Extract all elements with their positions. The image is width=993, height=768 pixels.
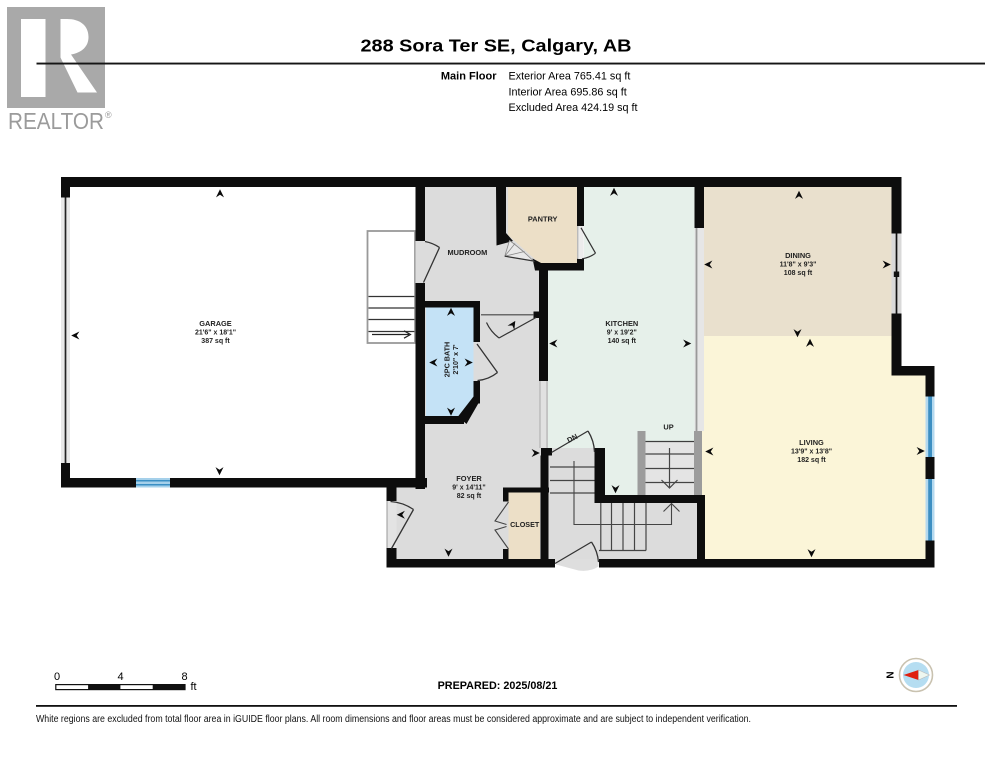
svg-text:8: 8 [181,671,187,683]
svg-text:Excluded Area 424.19 sq ft: Excluded Area 424.19 sq ft [509,102,638,114]
svg-text:4: 4 [117,671,123,683]
svg-text:108 sq ft: 108 sq ft [784,270,813,277]
svg-text:9' x 19'2": 9' x 19'2" [607,329,637,336]
svg-text:2'10" x 7': 2'10" x 7' [453,344,460,374]
svg-text:LIVING: LIVING [799,438,824,447]
svg-text:PREPARED: 2025/08/21: PREPARED: 2025/08/21 [438,680,558,692]
svg-text:PANTRY: PANTRY [528,215,558,224]
svg-text:CLOSET: CLOSET [510,520,540,529]
svg-text:UP: UP [663,423,673,432]
svg-text:140 sq ft: 140 sq ft [608,338,637,345]
svg-text:13'9" x 13'8": 13'9" x 13'8" [791,448,832,455]
svg-text:Main Floor: Main Floor [441,71,497,83]
svg-text:GARAGE: GARAGE [199,319,232,328]
svg-text:N: N [886,671,897,678]
svg-text:FOYER: FOYER [456,474,482,483]
svg-text:387 sq ft: 387 sq ft [201,338,230,345]
svg-text:288 Sora Ter SE, Calgary, AB: 288 Sora Ter SE, Calgary, AB [361,36,632,56]
svg-text:White regions are excluded fro: White regions are excluded from total fl… [36,714,751,725]
svg-text:9' x 14'11": 9' x 14'11" [452,484,486,491]
svg-text:182 sq ft: 182 sq ft [797,457,826,464]
svg-text:ft: ft [191,681,197,693]
svg-text:21'6" x 18'1": 21'6" x 18'1" [195,329,236,336]
svg-text:MUDROOM: MUDROOM [447,248,487,257]
svg-text:2PC BATH: 2PC BATH [443,342,452,377]
svg-text:®: ® [105,110,112,120]
svg-text:DINING: DINING [785,251,811,260]
svg-text:0: 0 [54,671,60,683]
svg-text:KITCHEN: KITCHEN [605,319,638,328]
svg-text:82 sq ft: 82 sq ft [457,493,482,500]
svg-text:11'8" x 9'3": 11'8" x 9'3" [780,261,817,268]
svg-text:Exterior Area 765.41 sq ft: Exterior Area 765.41 sq ft [509,71,631,83]
svg-text:Interior Area 695.86 sq ft: Interior Area 695.86 sq ft [509,86,627,98]
svg-text:REALTOR: REALTOR [8,108,104,134]
